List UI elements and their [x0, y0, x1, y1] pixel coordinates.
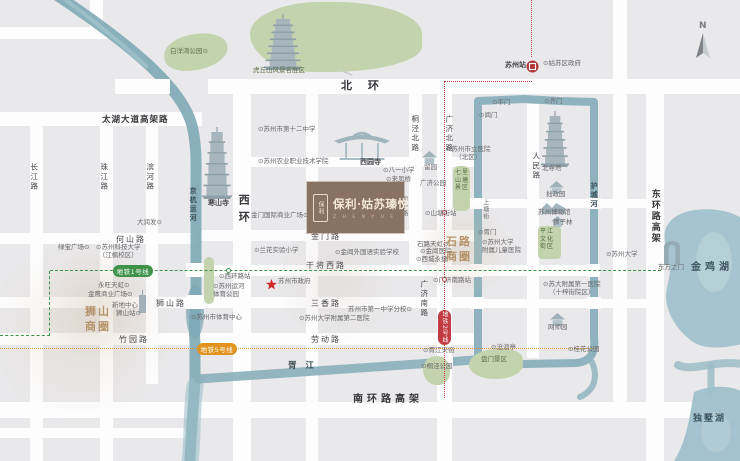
liuyuan-garden-label: 留园 — [424, 163, 437, 171]
map-label: ⊙胥门 — [478, 228, 496, 236]
map-label: ⊙姑苏区政府 — [543, 59, 581, 67]
map-label: 竹园路 — [119, 335, 149, 345]
map-label: ⊙山塘街站 — [425, 209, 456, 217]
map-label: 广济公园 — [420, 179, 446, 187]
south-ring-elevated-label: 南环路高架 — [353, 393, 423, 406]
map-label: 广济南路 — [419, 280, 429, 318]
compass-icon — [693, 32, 713, 60]
compass-north-label: N — [699, 21, 707, 31]
gate-of-orient-label: 东方之门 — [658, 263, 684, 271]
liuyuan-garden-icon — [422, 149, 437, 162]
map-label: 劳动路 — [311, 335, 341, 345]
map-label: 金门路 — [311, 232, 341, 242]
map-label: 网师园 — [548, 323, 568, 331]
metro-line1 — [49, 271, 50, 336]
grand-canal-label: 京杭运河 — [188, 187, 197, 223]
map-label: ⊙苏州大学 附属儿童医院 — [482, 238, 521, 255]
map-label: ⊙苏州市体育中心 — [191, 313, 242, 321]
road-bridge — [470, 297, 484, 309]
government-star-icon — [266, 275, 277, 286]
park-area — [423, 356, 450, 385]
map-label: 滨河路 — [145, 163, 155, 192]
map-label: ⊙苏州农业职业技术学院 — [258, 157, 328, 165]
dushu-lake-label: 独墅湖 — [693, 414, 726, 426]
map-label: 人民路 — [531, 152, 541, 181]
metro-line2 — [531, 0, 532, 57]
city-government-label: 苏州市政府 — [278, 277, 311, 285]
suzhou-station-label: 苏州站 — [505, 61, 526, 70]
panmen-scenic-label: 盘门景区 — [481, 355, 507, 363]
map-label: ⊙兰花实验小学 — [254, 246, 298, 254]
map-label: ⊙金阊外国语实验学校 — [335, 248, 399, 256]
map-label: 干将西路 — [306, 261, 346, 271]
location-map: 保利 保利·姑苏瑧悦 Z H E N Y U E N 地铁1号线地铁5号线地铁2… — [0, 0, 740, 461]
map-label: ⊙桐泾公园 — [421, 362, 452, 370]
map-label: 苏州博物馆 — [538, 208, 571, 216]
map-label: 北寺塔 — [542, 164, 562, 172]
metro-line-badge: 地铁1号线 — [113, 265, 153, 277]
xiyuan-temple-icon — [334, 126, 390, 160]
map-label: ⊙沧浪亭 — [491, 343, 516, 351]
map-label: ⊙苏大附属第一医院 （十梓街院区） — [543, 280, 600, 297]
map-label: ⊙苏州大学 — [606, 250, 637, 258]
metro-line1 — [0, 335, 50, 336]
map-label: ⊙桂花公园 — [568, 345, 599, 353]
map-label: 平江 文化 街区 — [540, 228, 554, 251]
map-label: 拙政园 — [546, 190, 566, 198]
map-label: 珠江路 — [99, 163, 109, 192]
map-label: 三香路 — [311, 299, 341, 309]
baiyangwan-park-label: 白洋湾公园⊙ — [170, 47, 208, 55]
map-label: 狮子林 — [553, 218, 573, 226]
map-label: ⊙八一小学 — [383, 166, 414, 174]
xiyuan-temple-label: 西园寺 — [360, 158, 381, 167]
huqiu-tower-icon — [264, 14, 302, 70]
map-label: ⊙苏州运河 体育公园 — [213, 282, 244, 299]
shishan-business-district-label: 狮山 商圈 — [85, 305, 111, 335]
map-label: 大润发⊙ — [137, 218, 162, 226]
north-ring-road-label: 北 环 — [341, 79, 385, 93]
map-label: ⊙西环路站 — [219, 272, 250, 280]
huqiu-scenic-area-label: 虎丘山风景名胜区 — [253, 66, 305, 74]
map-label: ⊙苏州市立医院 （北区） — [446, 145, 490, 162]
map-label: 绿宝广场⊙ — [58, 243, 89, 251]
shantang-scenic-label: 七里 山塘 景区 — [455, 169, 469, 192]
road-bridge — [115, 79, 170, 94]
hanshan-temple-label: 寒山寺 — [208, 199, 229, 208]
map-label: ⊙平门 — [492, 98, 510, 106]
suzhou-railway-station-icon — [526, 58, 539, 71]
map-label: ⊙苏州科技大学 （江枫校区） — [96, 243, 140, 260]
map-label: 金鹰商业广场⊙ — [88, 290, 132, 298]
map-label: 永旺天虹⊙ — [98, 281, 129, 289]
map-label: ⊙胥江天街 — [423, 346, 454, 354]
jinji-lake-label: 金鸡湖 — [691, 261, 733, 274]
moat-label: 护城河 — [589, 182, 598, 209]
road-bridge — [587, 297, 601, 309]
project-name: 保利·姑苏瑧悦 — [333, 196, 410, 212]
hanshan-temple-pagoda-icon — [202, 127, 232, 199]
map-label: 金门国际商业广场⊙ — [251, 211, 308, 219]
map-label: ⊙西城永捷 — [416, 255, 447, 263]
east-ring-elevated-label: 东环路高架 — [648, 189, 660, 244]
west-ring-road-label: 西环 — [236, 194, 250, 228]
project-title-block: 保利·姑苏瑧悦 Z H E N Y U E — [333, 196, 410, 220]
map-label: 长江路 — [29, 163, 39, 192]
project-seal-text: 保利 — [316, 201, 325, 215]
shilu-business-district-label: 石路 商圈 — [446, 235, 472, 265]
road-bridge — [186, 295, 204, 309]
project-logo: 保利 保利·姑苏瑧悦 Z H E N Y U E — [307, 182, 404, 233]
xujiang-river-label: 胥江 — [288, 361, 323, 372]
metro-line2 — [445, 81, 532, 82]
map-label: ⊙广济南路站 — [433, 276, 471, 284]
north-temple-pagoda-icon — [541, 111, 569, 167]
map-label: ⊙苏州大学附属第二医院 — [299, 314, 369, 322]
project-seal: 保利 — [313, 194, 328, 222]
map-label: 狮山站⊙ — [116, 309, 141, 317]
map-label: 上塘街 — [481, 199, 489, 220]
gate-of-orient-icon — [663, 240, 681, 265]
metro-line-badge: 地铁2号线 — [438, 310, 451, 345]
map-label: 桐泾北路 — [410, 115, 420, 153]
map-label: 苏州市第一中学分校⊙ — [348, 305, 412, 313]
map-label: ⊙齐门 — [544, 97, 562, 105]
moat-outlet — [580, 362, 595, 397]
project-name-en: Z H E N Y U E — [333, 215, 410, 220]
map-label: 狮山路 — [156, 299, 186, 309]
metro-line-badge: 地铁5号线 — [197, 343, 237, 355]
map-label: ⊙苏州市第十二中学 — [258, 125, 315, 133]
canal-bulge — [186, 285, 204, 339]
taihu-avenue-label: 太湖大道高架路 — [102, 115, 169, 126]
map-label: ⊙阊门 — [479, 111, 497, 119]
canal-south — [190, 386, 195, 461]
